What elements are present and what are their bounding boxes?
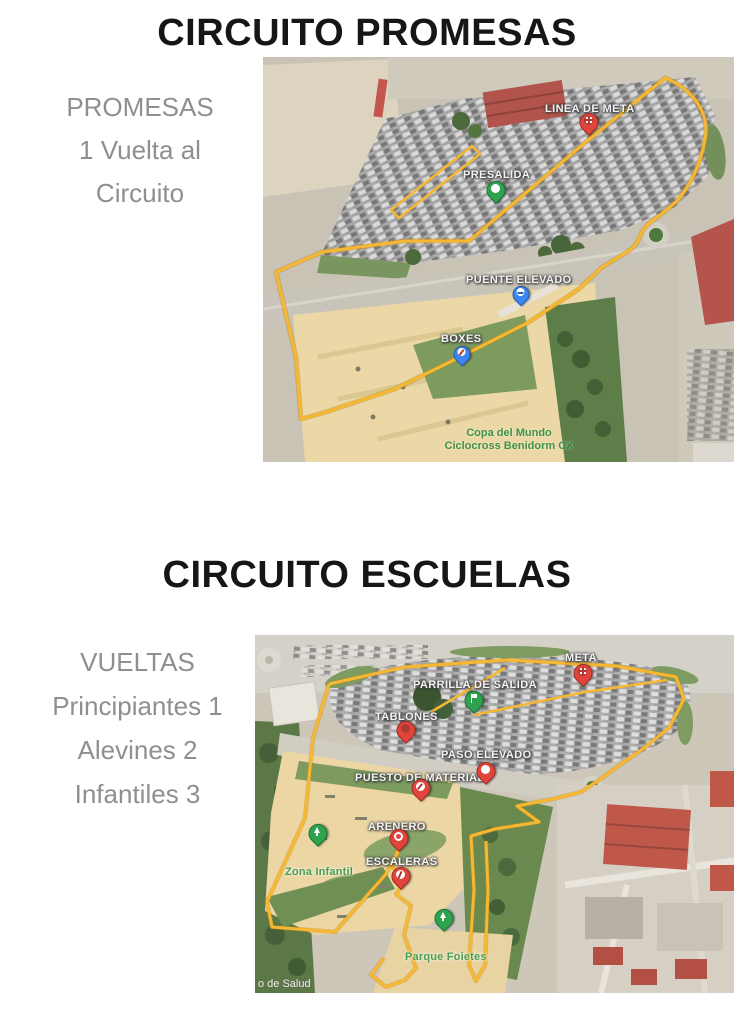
promesas-side-line-3: Circuito [20, 172, 260, 215]
boxes-marker [453, 341, 470, 365]
meta-marker [574, 661, 591, 685]
puente-elevado-marker [512, 281, 529, 305]
promesas-title: CIRCUITO PROMESAS [0, 12, 734, 55]
wrench-icon [416, 782, 425, 791]
promesas-side-line-1: PROMESAS [20, 86, 260, 129]
parque-foietes-label: Parque Foietes [405, 951, 487, 963]
watermark-line-2: Ciclocross Benidorm CX [409, 440, 609, 453]
zona-infantil-marker [309, 821, 326, 845]
checkered-flag-icon [578, 667, 587, 676]
centro-salud-label: o de Salud [258, 978, 311, 990]
slash-icon [396, 870, 405, 879]
tree-icon [313, 827, 322, 836]
escuelas-side-text: VUELTAS Principiantes 1 Alevines 2 Infan… [10, 640, 265, 816]
escuelas-side-line-2: Principiantes 1 [10, 684, 265, 728]
escuelas-side-line-3: Alevines 2 [10, 728, 265, 772]
zona-infantil-label: Zona Infantil [285, 866, 353, 878]
map-watermark: Copa del Mundo Ciclocross Benidorm CX [409, 427, 609, 453]
checkered-flag-icon [584, 116, 593, 125]
dot-icon [491, 184, 500, 193]
puesto-de-material-marker [477, 759, 494, 783]
escuelas-side-line-1: VUELTAS [10, 640, 265, 684]
watermark-line-1: Copa del Mundo [409, 427, 609, 440]
escuelas-title: CIRCUITO ESCUELAS [0, 554, 734, 597]
wrench-icon [457, 348, 465, 356]
promesas-satellite-image [263, 57, 734, 462]
dot-icon [481, 765, 490, 774]
tablones-marker [397, 718, 414, 742]
escuelas-map: META PARRILLA DE SALIDA TABLONES PASO EL… [255, 635, 734, 993]
course-obstacle-marker [392, 864, 409, 888]
promesas-side-text: PROMESAS 1 Vuelta al Circuito [20, 86, 260, 215]
promesas-side-line-2: 1 Vuelta al [20, 129, 260, 172]
arenero-marker [412, 776, 429, 800]
parque-foietes-marker [435, 906, 452, 930]
bridge-icon [516, 288, 524, 296]
ring-icon [394, 832, 403, 841]
document-page: CIRCUITO PROMESAS PROMESAS 1 Vuelta al C… [0, 0, 734, 1023]
escuelas-side-line-4: Infantiles 3 [10, 772, 265, 816]
flag-icon [469, 694, 478, 703]
dot-icon [401, 724, 410, 733]
escaleras-marker [390, 826, 407, 850]
tree-icon [439, 912, 448, 921]
presalida-marker [487, 178, 504, 202]
promesas-map: LINEA DE META PRESALIDA PUENTE ELEVADO B… [263, 57, 734, 462]
linea-de-meta-marker [580, 110, 597, 134]
parrilla-de-salida-marker [465, 688, 482, 712]
